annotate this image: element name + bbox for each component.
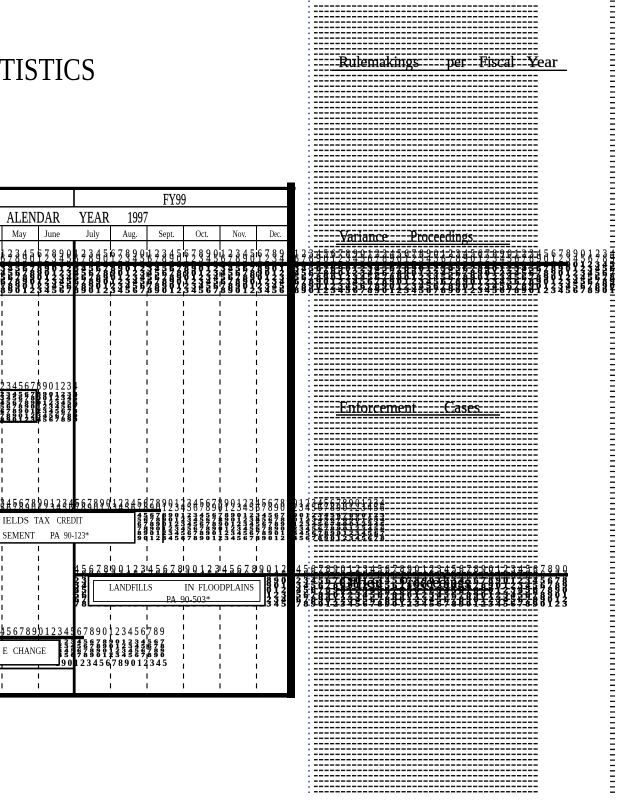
svg-text:TAX: TAX (34, 516, 50, 526)
svg-text:Sept.: Sept. (159, 229, 175, 239)
svg-text:May: May (12, 229, 27, 239)
svg-text:TISTICS: TISTICS (0, 51, 96, 87)
svg-text:FLOODPLAINS: FLOODPLAINS (198, 583, 254, 593)
svg-text:890123456789012345678901234567: 8901234567890123456789012345678901234567… (1, 286, 615, 295)
svg-text:June: June (45, 229, 61, 239)
svg-text:Variance: Variance (339, 229, 388, 246)
svg-text:SEMENT: SEMENT (3, 531, 36, 541)
svg-text:Rulemakings: Rulemakings (339, 54, 420, 71)
svg-text:Cases: Cases (444, 400, 480, 417)
svg-text:1997: 1997 (128, 210, 149, 227)
svg-text:Oct.: Oct. (196, 229, 209, 239)
svg-text:LANDFILLS: LANDFILLS (109, 583, 153, 593)
svg-text:Enforcement: Enforcement (339, 400, 417, 417)
svg-text:CREDIT: CREDIT (57, 516, 83, 526)
svg-text:890123456789012345: 890123456789012345 (55, 658, 168, 668)
svg-text:ALENDAR: ALENDAR (7, 210, 61, 227)
svg-text:IELDS: IELDS (3, 516, 30, 526)
svg-text:July: July (86, 229, 100, 239)
svg-text:90-503*: 90-503* (180, 595, 210, 605)
svg-text:IN: IN (184, 583, 195, 593)
svg-text:PA: PA (166, 595, 176, 605)
svg-text:Year: Year (527, 54, 559, 71)
svg-text:Proceedings: Proceedings (410, 229, 473, 246)
svg-text:Aug.: Aug. (123, 229, 138, 239)
svg-text:CHANGE: CHANGE (13, 646, 46, 656)
svg-text:FY99: FY99 (163, 192, 186, 209)
svg-text:Proceedings: Proceedings (400, 575, 470, 592)
svg-text:YEAR: YEAR (79, 210, 110, 227)
svg-text:Nov.: Nov. (233, 229, 247, 239)
svg-text:per: per (447, 54, 467, 71)
svg-text:PA: PA (50, 531, 60, 541)
svg-text:Fiscal: Fiscal (479, 54, 515, 71)
svg-text:E: E (3, 646, 9, 656)
svg-text:90-123*: 90-123* (64, 531, 89, 541)
svg-text:Other: Other (339, 575, 382, 592)
svg-text:Dec.: Dec. (270, 229, 282, 239)
